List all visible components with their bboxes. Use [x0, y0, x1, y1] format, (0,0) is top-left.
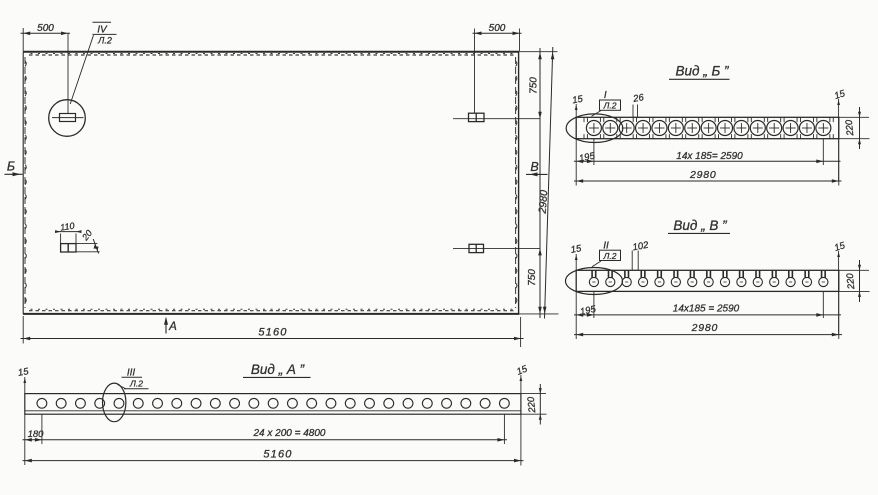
svg-text:2980: 2980 [537, 190, 551, 215]
svg-text:24 х 200 = 4800: 24 х 200 = 4800 [252, 428, 325, 439]
svg-text:Л.2: Л.2 [603, 251, 617, 261]
svg-text:14х185 = 2590: 14х185 = 2590 [673, 303, 740, 314]
svg-text:2980: 2980 [689, 169, 717, 181]
svg-text:750: 750 [529, 77, 540, 94]
svg-text:Вид „ А ”: Вид „ А ” [251, 362, 305, 377]
svg-text:Л.2: Л.2 [603, 101, 617, 111]
svg-text:500: 500 [489, 23, 506, 34]
svg-text:Б: Б [7, 160, 15, 174]
svg-text:Вид „ Б ”: Вид „ Б ” [675, 63, 729, 78]
svg-text:I: I [604, 90, 607, 101]
svg-text:750: 750 [527, 269, 538, 286]
svg-text:500: 500 [37, 23, 54, 34]
svg-text:110: 110 [59, 221, 75, 233]
svg-text:2980: 2980 [691, 322, 719, 334]
svg-text:Вид „ В ”: Вид „ В ” [673, 218, 727, 233]
svg-text:Л.2: Л.2 [129, 379, 143, 389]
svg-text:5160: 5160 [263, 448, 292, 460]
svg-text:IV: IV [97, 24, 108, 35]
svg-text:В: В [530, 160, 538, 174]
svg-text:А: А [168, 321, 177, 333]
svg-text:5160: 5160 [258, 326, 287, 338]
svg-text:14х 185= 2590: 14х 185= 2590 [676, 151, 743, 162]
svg-text:220: 220 [526, 396, 538, 414]
svg-text:220: 220 [845, 272, 857, 290]
svg-text:220: 220 [844, 119, 856, 137]
svg-text:180: 180 [28, 429, 45, 440]
svg-text:Л.2: Л.2 [97, 36, 112, 46]
